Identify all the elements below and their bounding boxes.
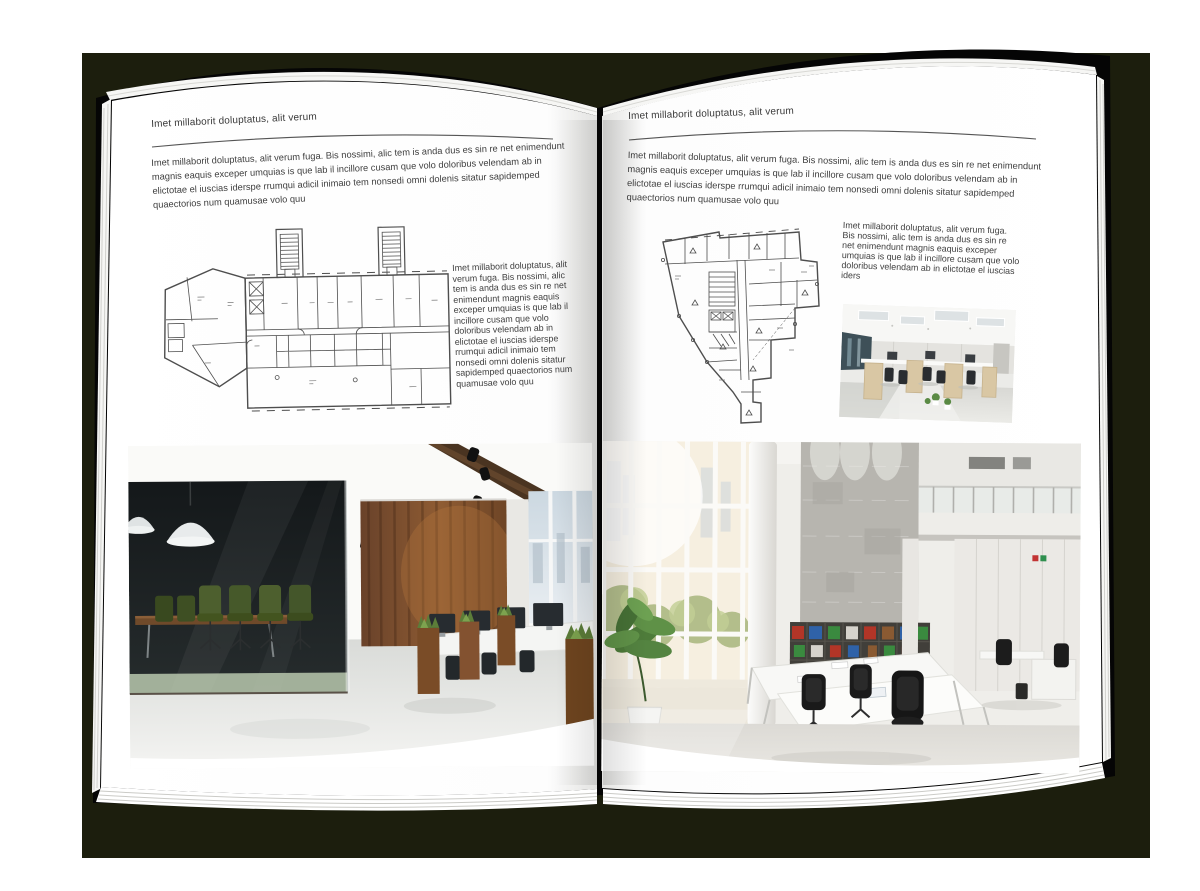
- floor-plan-drawing: [649, 220, 833, 426]
- gutter-shadow-right: [603, 120, 647, 785]
- bright-atrium-office-photo: [601, 441, 1081, 773]
- office-photo-dark-meeting-room: [128, 443, 594, 769]
- concrete-wall: [800, 441, 919, 623]
- mezzanine-balcony: [918, 443, 1081, 542]
- gutter-shadow-left: [556, 120, 597, 785]
- left-floorplan-figure: [156, 222, 453, 418]
- floor-plan-drawing: [156, 222, 453, 418]
- exit-sign-icon: [1040, 555, 1046, 561]
- right-photo-small-figure: [839, 304, 1016, 423]
- right-side-text: Imet millaborit doluptatus, alit verum f…: [841, 221, 1021, 287]
- right-photo-large-figure: [601, 441, 1081, 773]
- right-floorplan-figure: [649, 220, 833, 426]
- open-plan-office-photo: [839, 304, 1016, 423]
- right-header-rule: [627, 126, 1039, 144]
- first-aid-sign-icon: [1032, 555, 1038, 561]
- left-photo-figure: [128, 443, 594, 769]
- right-page-intro: Imet millaborit doluptatus, alit verum f…: [626, 148, 1041, 216]
